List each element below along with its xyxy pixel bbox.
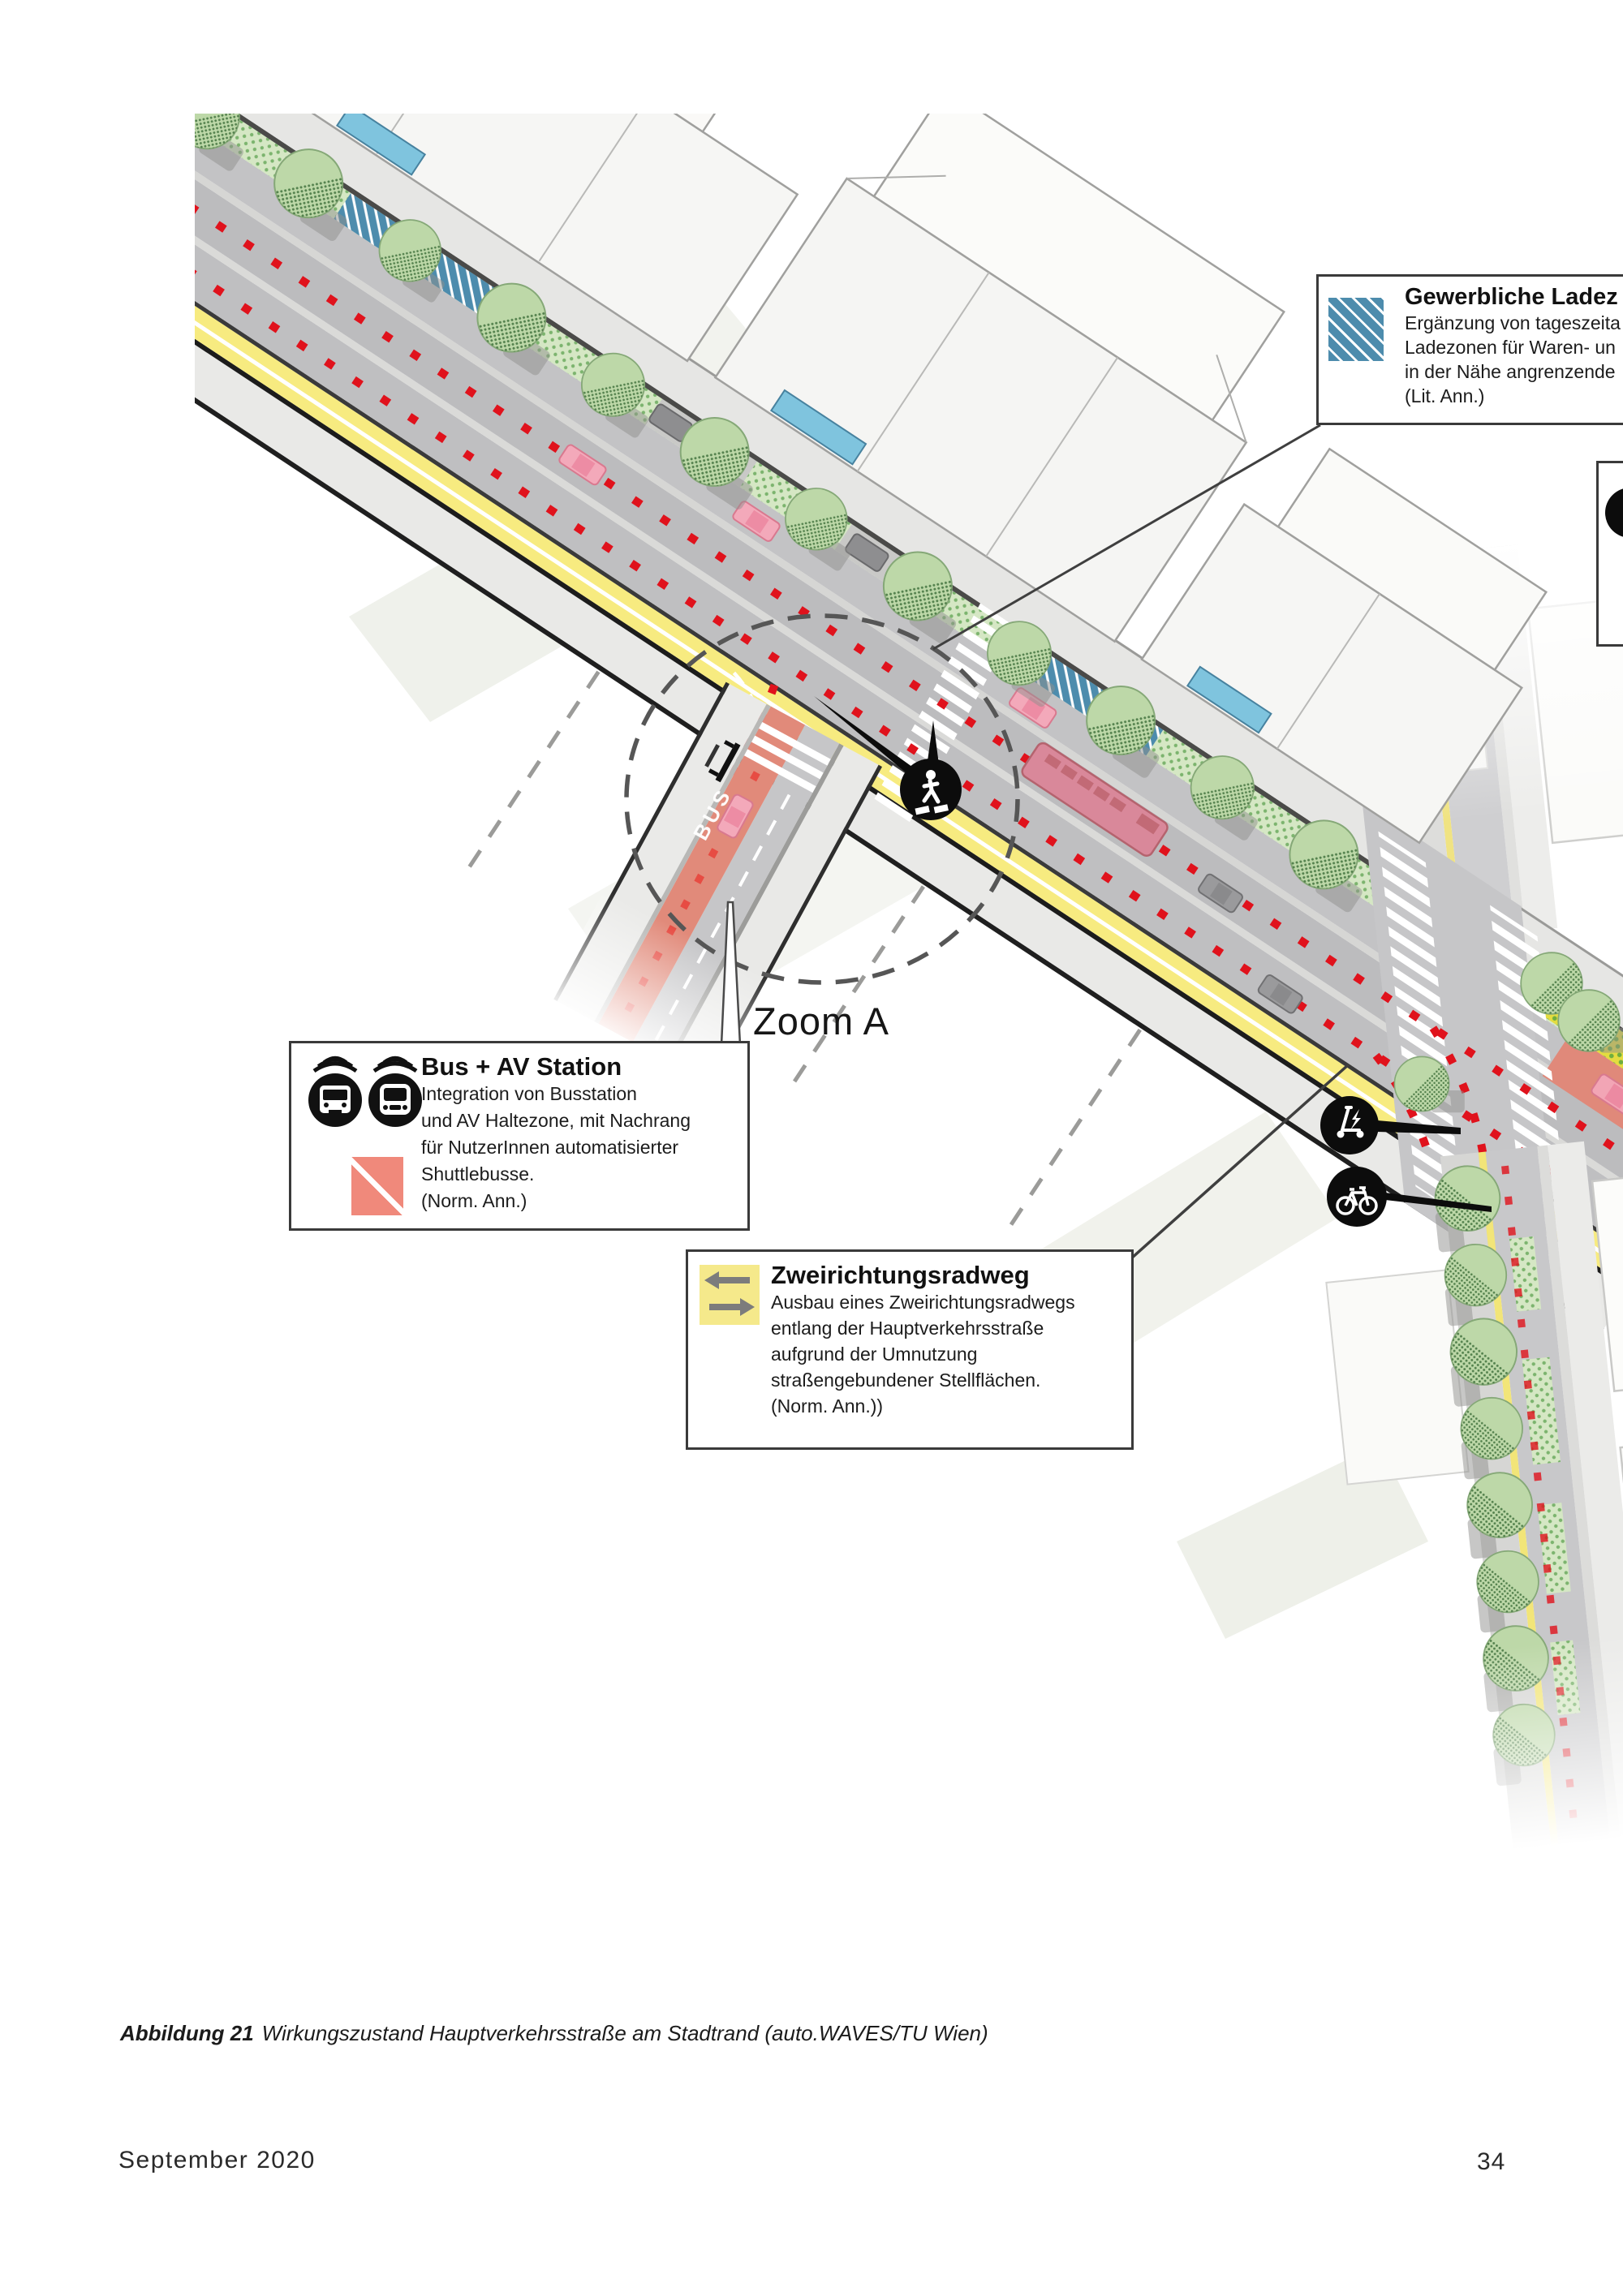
- two-way-arrows-yellow-square-icon: [700, 1265, 760, 1325]
- caption-label: Abbildung 21: [120, 2021, 254, 2045]
- callout-line: (Norm. Ann.)): [771, 1393, 1075, 1419]
- callout-line: entlang der Hauptverkehrsstraße: [771, 1315, 1075, 1341]
- bus-and-av-icons: [303, 1050, 433, 1147]
- bus-icon: [308, 1058, 362, 1128]
- arrow-left-icon: [704, 1271, 750, 1289]
- zoom-a-label: Zoom A: [753, 999, 889, 1043]
- callout-line: in der Nähe angrenzende: [1405, 359, 1621, 384]
- callout-line: (Lit. Ann.): [1405, 384, 1621, 408]
- callout-title: Zweirichtungsradweg: [771, 1262, 1075, 1289]
- callout-line: Ergänzung von tageszeita: [1405, 311, 1621, 335]
- document-page: Gewerbliche Ladez Ergänzung von tageszei…: [0, 0, 1623, 2296]
- callout-bus-av-station: Bus + AV Station Integration von Busstat…: [289, 1041, 750, 1231]
- callout-line: Ladezonen für Waren- un: [1405, 335, 1621, 359]
- page-number: 34: [1477, 2148, 1505, 2176]
- salmon-diagonal-square-icon: [351, 1157, 403, 1215]
- callout-line: und AV Haltezone, mit Nachrang: [421, 1107, 691, 1134]
- callout-line: Ausbau eines Zweirichtungsradwegs: [771, 1289, 1075, 1315]
- callout-loading-zone: Gewerbliche Ladez Ergänzung von tageszei…: [1316, 274, 1623, 425]
- callout-title: Gewerbliche Ladez: [1405, 283, 1621, 311]
- av-shuttle-icon: [368, 1058, 422, 1128]
- figure-caption: Abbildung 21Wirkungszustand Hauptverkehr…: [120, 2021, 988, 2046]
- callout-line: aufgrund der Umnutzung: [771, 1341, 1075, 1367]
- footer-date: September 2020: [118, 2147, 316, 2174]
- callout-line: Integration von Busstation: [421, 1081, 691, 1107]
- arrow-right-icon: [709, 1298, 755, 1316]
- caption-text: Wirkungszustand Hauptverkehrsstraße am S…: [262, 2021, 988, 2045]
- blue-hatch-square-icon: [1328, 298, 1384, 361]
- callout-partial-right: [1596, 461, 1623, 647]
- callout-bike-path: Zweirichtungsradweg Ausbau eines Zweiric…: [686, 1249, 1134, 1450]
- callout-line: straßengebundener Stellflächen.: [771, 1367, 1075, 1393]
- callout-line: (Norm. Ann.): [421, 1188, 691, 1215]
- callout-line: für NutzerInnen automatisierter: [421, 1134, 691, 1161]
- partial-circle-icon: [1605, 488, 1623, 538]
- callout-title: Bus + AV Station: [421, 1053, 691, 1081]
- callout-line: Shuttlebusse.: [421, 1161, 691, 1188]
